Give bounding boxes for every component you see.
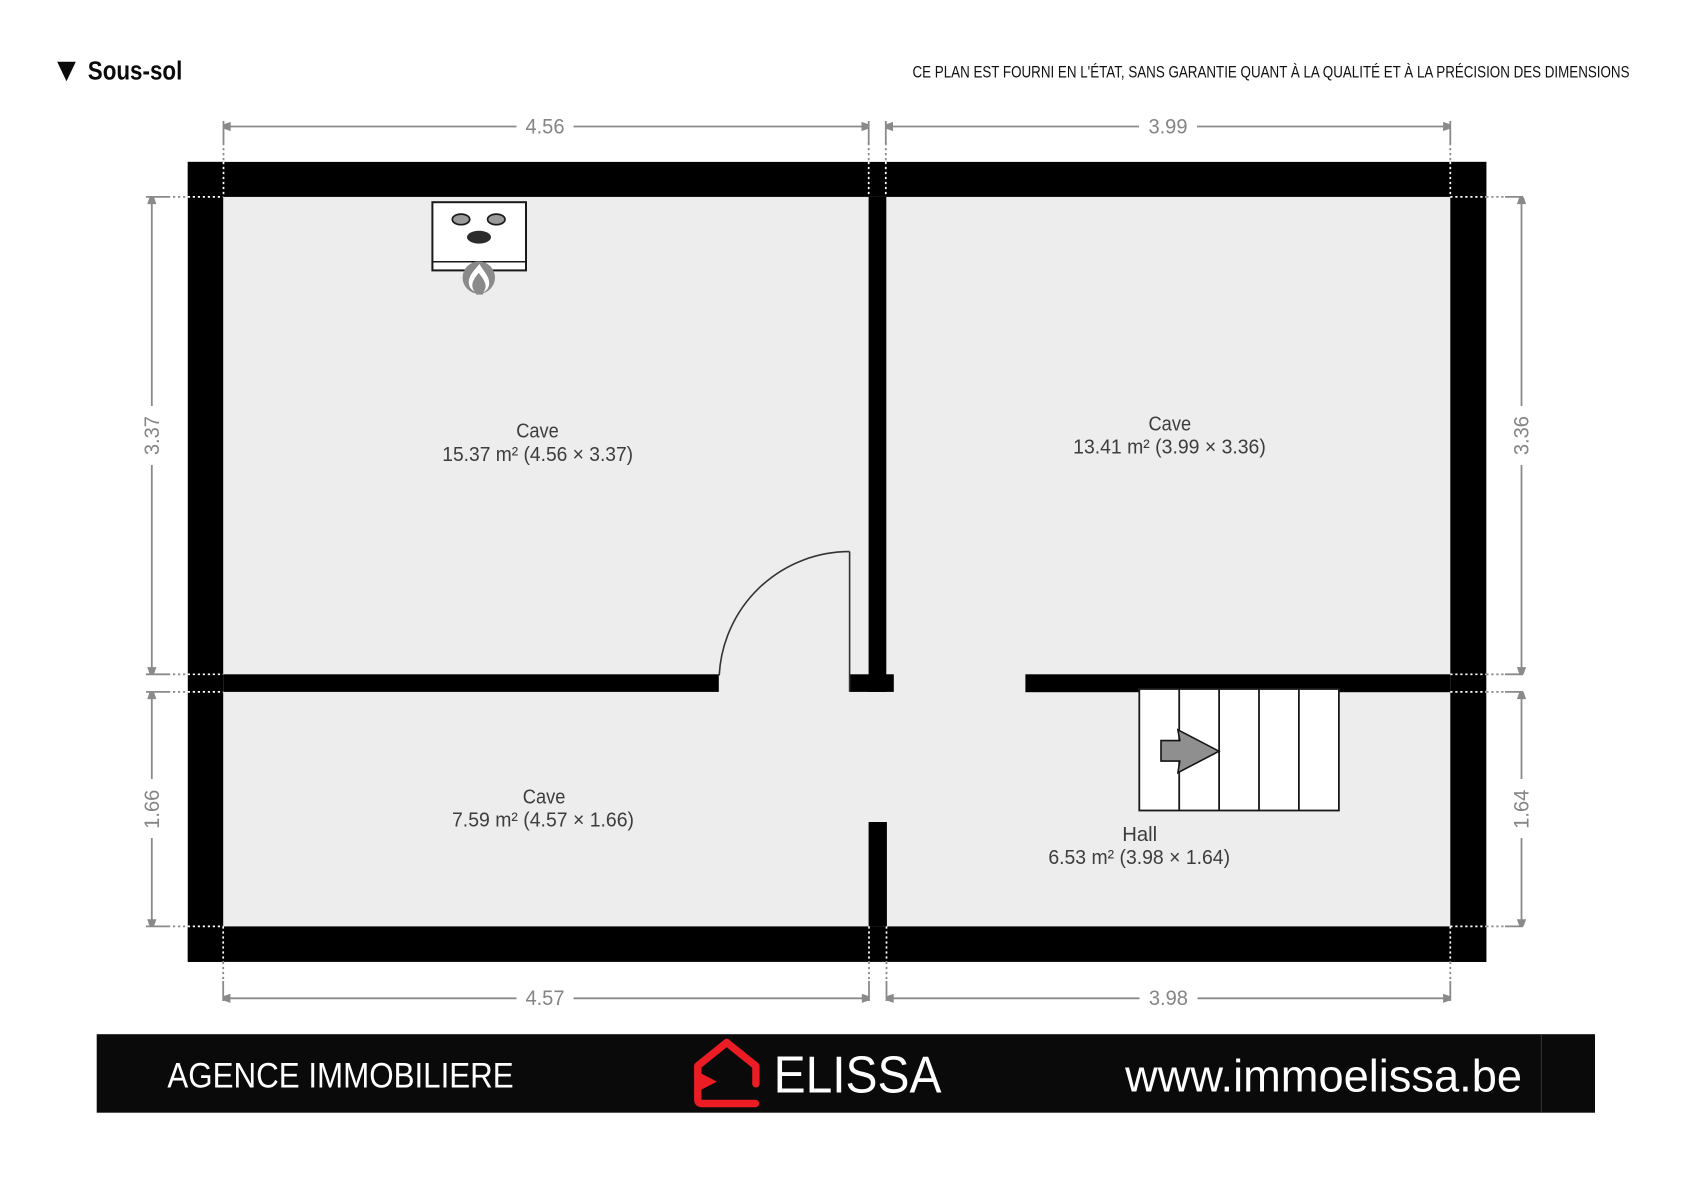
svg-text:3.37: 3.37: [140, 416, 164, 455]
svg-text:13.41 m² (3.99 × 3.36): 13.41 m² (3.99 × 3.36): [1073, 436, 1266, 459]
svg-text:4.57: 4.57: [525, 986, 564, 1010]
svg-text:Hall: Hall: [1122, 823, 1157, 846]
svg-text:3.98: 3.98: [1149, 986, 1188, 1010]
svg-text:ELISSA: ELISSA: [774, 1047, 942, 1105]
svg-text:www.immoelissa.be: www.immoelissa.be: [1124, 1050, 1522, 1101]
svg-text:3.36: 3.36: [1510, 416, 1534, 455]
svg-text:CE PLAN EST FOURNI EN L'ÉTAT,: CE PLAN EST FOURNI EN L'ÉTAT, SANS GARAN…: [913, 62, 1630, 81]
svg-text:1.66: 1.66: [140, 790, 164, 829]
svg-text:Cave: Cave: [1149, 412, 1192, 435]
svg-text:15.37 m² (4.56 × 3.37): 15.37 m² (4.56 × 3.37): [442, 443, 633, 466]
svg-text:Sous-sol: Sous-sol: [88, 57, 183, 85]
svg-text:6.53 m² (3.98 × 1.64): 6.53 m² (3.98 × 1.64): [1048, 846, 1230, 869]
svg-text:1.64: 1.64: [1510, 790, 1534, 829]
svg-text:3.99: 3.99: [1148, 114, 1187, 138]
svg-text:Cave: Cave: [523, 785, 566, 808]
svg-text:7.59 m² (4.57 × 1.66): 7.59 m² (4.57 × 1.66): [452, 808, 634, 831]
svg-text:Cave: Cave: [516, 420, 559, 443]
svg-text:4.56: 4.56: [525, 114, 564, 138]
svg-text:AGENCE IMMOBILIERE: AGENCE IMMOBILIERE: [167, 1055, 513, 1095]
